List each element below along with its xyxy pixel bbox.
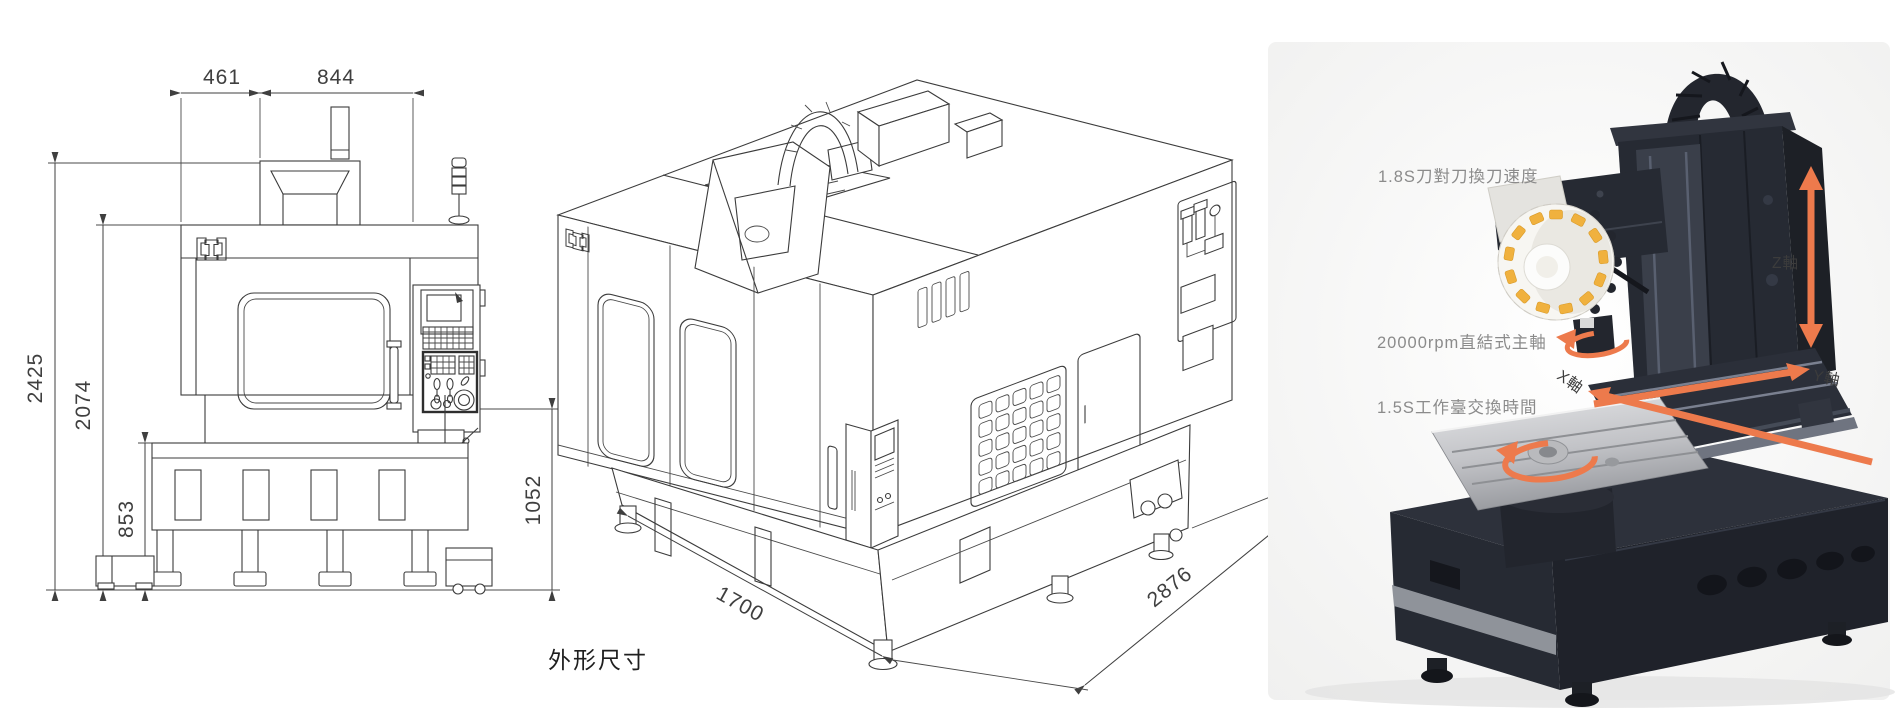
coolant-cart: [446, 548, 492, 594]
front-view-machine: [96, 107, 492, 594]
accessory-box: [96, 556, 154, 589]
control-panel: [413, 285, 480, 432]
technical-drawing-canvas: 461 844 2425 2074 853 1052: [0, 0, 1900, 715]
signal-tower: [449, 158, 469, 224]
dim-panel-height: 1052: [522, 475, 545, 526]
iso-door-handle: [828, 446, 837, 510]
dim-base-height: 853: [115, 500, 138, 538]
machine-photo: 1.8S刀對刀換刀速度 20000rpm直結式主軸 1.5S工作臺交換時間 Z軸…: [1268, 42, 1895, 708]
atc-cover: [695, 142, 830, 293]
dim-top-left: 461: [203, 66, 241, 89]
iso-control-pod: [846, 420, 898, 548]
front-view-drawing: 461 844 2425 2074 853 1052: [24, 66, 560, 594]
dim-body-height: 2074: [72, 380, 95, 431]
leveling-feet: [149, 530, 436, 586]
iso-view-drawing: 1700 2876 外形尺寸: [548, 80, 1358, 690]
tool-pot: [331, 107, 349, 159]
dim-top-right: 844: [317, 66, 355, 89]
z-axis-label: Z軸: [1772, 254, 1799, 272]
callout-tool-change: 1.8S刀對刀換刀速度: [1378, 167, 1538, 186]
callout-table-change: 1.5S工作臺交換時間: [1377, 398, 1537, 417]
machine-spec-figure: 461 844 2425 2074 853 1052: [0, 0, 1900, 715]
figure-caption: 外形尺寸: [548, 647, 648, 673]
dim-overall-height: 2425: [24, 353, 47, 404]
dim-iso-width: 2876: [1143, 562, 1197, 612]
machine-base: [152, 443, 468, 530]
callout-spindle: 20000rpm直結式主軸: [1377, 333, 1547, 352]
